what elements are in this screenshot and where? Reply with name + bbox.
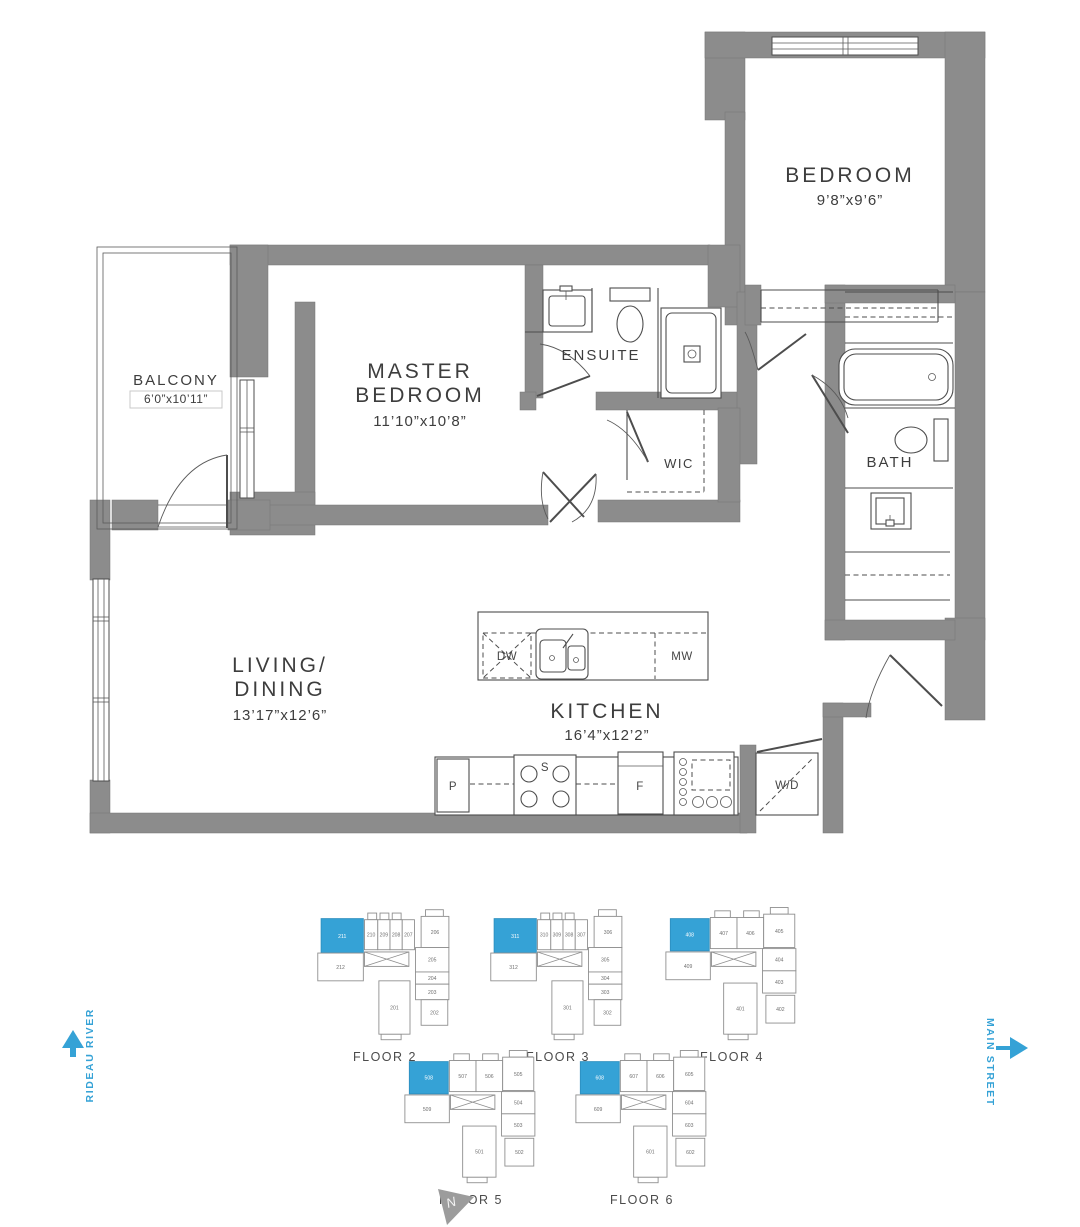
keyplan-unit-number: 203: [428, 990, 437, 996]
unit-floorplan: DW MW P S F: [0, 0, 1080, 870]
keyplan-unit-number: 305: [601, 958, 610, 964]
ensuite-fixtures: [525, 286, 721, 398]
living-window-icon: [93, 579, 109, 781]
keyplan-unit-number: 306: [604, 930, 613, 936]
keyplan-unit-number: 206: [431, 930, 440, 936]
living-dining-dims: 13’17”x12’6”: [233, 707, 328, 724]
kitchen-counter: P S F: [435, 752, 738, 815]
keyplan-unit-number: 309: [553, 933, 562, 939]
floor-6-label: FLOOR 6: [567, 1193, 717, 1207]
living-dining-label-2: DINING: [234, 678, 326, 701]
kitchen-dims: 16’4”x12’2”: [564, 727, 649, 744]
pantry-label: P: [449, 781, 457, 793]
keyplan-unit-number: 207: [404, 933, 413, 939]
bath-fixtures: [839, 292, 955, 600]
keyplan-unit-number: 501: [475, 1150, 484, 1156]
keyplan-unit-number: 201: [390, 1006, 399, 1012]
keyplan-floor-4: 408407406405404403402401409 FLOOR 4: [657, 903, 807, 1064]
mechanical-unit-icon: [674, 752, 734, 815]
lower-closet: [845, 552, 950, 600]
keyplan-unit-number: 402: [776, 1007, 785, 1013]
master-balcony-window-icon: [240, 380, 254, 498]
stove-label: S: [541, 762, 549, 774]
master-bedroom-label-1: MASTER: [367, 360, 473, 383]
bedroom-label: BEDROOM: [785, 164, 915, 187]
keyplan-unit-number: 606: [656, 1074, 665, 1080]
wd-bifold-door-icon: [757, 739, 822, 752]
fridge-label: F: [636, 781, 644, 793]
bath-label: BATH: [867, 454, 914, 471]
keyplan-unit-number: 210: [367, 933, 376, 939]
wic-label: WIC: [664, 456, 694, 471]
keyplan-unit-number: 405: [775, 929, 784, 935]
kitchen-island: DW MW: [478, 612, 708, 680]
balcony-dims: 6’0”x10’11”: [144, 392, 208, 406]
keyplan-unit-number: 209: [380, 933, 389, 939]
keyplan-unit-number: 508: [425, 1076, 434, 1082]
bathtub-icon: [839, 349, 953, 405]
balcony-door-threshold: [158, 505, 228, 527]
microwave-label: MW: [671, 651, 692, 663]
entry-door-icon: [866, 655, 942, 718]
floorplan-page: DW MW P S F: [0, 0, 1080, 1227]
walls: [90, 32, 985, 833]
keyplan-unit-number: 601: [646, 1150, 655, 1156]
keyplan-unit-number: 506: [485, 1074, 494, 1080]
main-street-label: MAIN STREET: [984, 1018, 996, 1107]
stove-icon: S: [514, 755, 576, 815]
keyplan-unit-number: 208: [392, 933, 401, 939]
bedroom-dims: 9’8”x9’6”: [817, 192, 884, 209]
keyplan-unit-number: 211: [338, 934, 346, 940]
keyplan-unit-number: 604: [685, 1101, 694, 1107]
keyplan-floor-3: 311310309308307306305304303302301312 FLO…: [483, 903, 633, 1064]
balcony-door-icon: [158, 455, 227, 528]
kitchen-label: KITCHEN: [550, 700, 663, 723]
pantry-cabinet: P: [437, 759, 469, 812]
washer-dryer-label: W/D: [775, 780, 799, 792]
keyplan-unit-number: 303: [601, 990, 610, 996]
dishwasher-label: DW: [497, 651, 517, 663]
wic-closet: [627, 410, 704, 492]
rideau-river-arrow-icon: [60, 1028, 86, 1062]
ensuite-label: ENSUITE: [561, 347, 640, 364]
keyplan-unit-number: 308: [565, 933, 574, 939]
keyplan-unit-number: 602: [686, 1150, 695, 1156]
balcony-label: BALCONY: [133, 372, 219, 389]
keyplan-unit-number: 311: [511, 934, 519, 940]
ensuite-sink-icon: [543, 286, 592, 332]
shower-icon: [661, 308, 721, 398]
keyplan-unit-number: 509: [423, 1107, 432, 1113]
keyplan-unit-number: 310: [540, 933, 549, 939]
washer-dryer-icon: W/D: [756, 753, 818, 815]
keyplan-unit-number: 603: [685, 1123, 694, 1129]
fridge-icon: F: [618, 752, 663, 814]
keyplan-unit-number: 205: [428, 958, 437, 964]
kitchen-sink-icon: [536, 629, 588, 679]
bedroom-window-icon: [772, 37, 918, 55]
keyplan-unit-number: 407: [719, 931, 728, 937]
compass-north-icon: N: [432, 1186, 480, 1227]
keyplan-unit-number: 505: [514, 1072, 523, 1078]
keyplan-unit-number: 307: [577, 933, 586, 939]
living-dining-label-1: LIVING/: [232, 654, 328, 677]
keyplan-unit-number: 605: [685, 1072, 694, 1078]
keyplan-unit-number: 304: [601, 976, 610, 982]
keyplan-floor-5: 508507506505504503502501509 FLOOR 5: [396, 1046, 546, 1207]
keyplan-unit-number: 507: [458, 1074, 467, 1080]
keyplan-unit-number: 202: [430, 1011, 439, 1017]
keyplan-unit-number: 403: [775, 980, 784, 986]
master-bedroom-dims: 11’10”x10’8”: [373, 413, 466, 430]
keyplan-unit-number: 408: [686, 933, 695, 939]
keyplan-unit-number: 503: [514, 1123, 523, 1129]
keyplan-unit-number: 607: [629, 1074, 638, 1080]
keyplan-unit-number: 212: [336, 965, 345, 971]
keyplan-floor-6: 608607606605604603602601609 FLOOR 6: [567, 1046, 717, 1207]
bath-sink-icon: [871, 493, 911, 529]
keyplan-unit-number: 404: [775, 958, 784, 964]
master-door-icon: [550, 474, 596, 522]
keyplan-unit-number: 301: [563, 1006, 572, 1012]
keyplan-unit-number: 406: [746, 931, 755, 937]
keyplan-unit-number: 609: [594, 1107, 603, 1113]
keyplan-floor-2: 211210209208207206205204203202201212 FLO…: [310, 903, 460, 1064]
keyplan-unit-number: 302: [603, 1011, 612, 1017]
main-street-arrow-icon: [995, 1035, 1031, 1061]
keyplan-unit-number: 312: [509, 965, 518, 971]
keyplan-unit-number: 504: [514, 1101, 523, 1107]
keyplan-unit-number: 401: [736, 1007, 745, 1013]
keyplan-unit-number: 502: [515, 1150, 524, 1156]
ensuite-toilet-icon: [610, 288, 650, 342]
keyplan-unit-number: 409: [684, 964, 693, 970]
master-bedroom-label-2: BEDROOM: [355, 384, 485, 407]
keyplan-unit-number: 608: [596, 1076, 605, 1082]
keyplan-unit-number: 204: [428, 976, 437, 982]
